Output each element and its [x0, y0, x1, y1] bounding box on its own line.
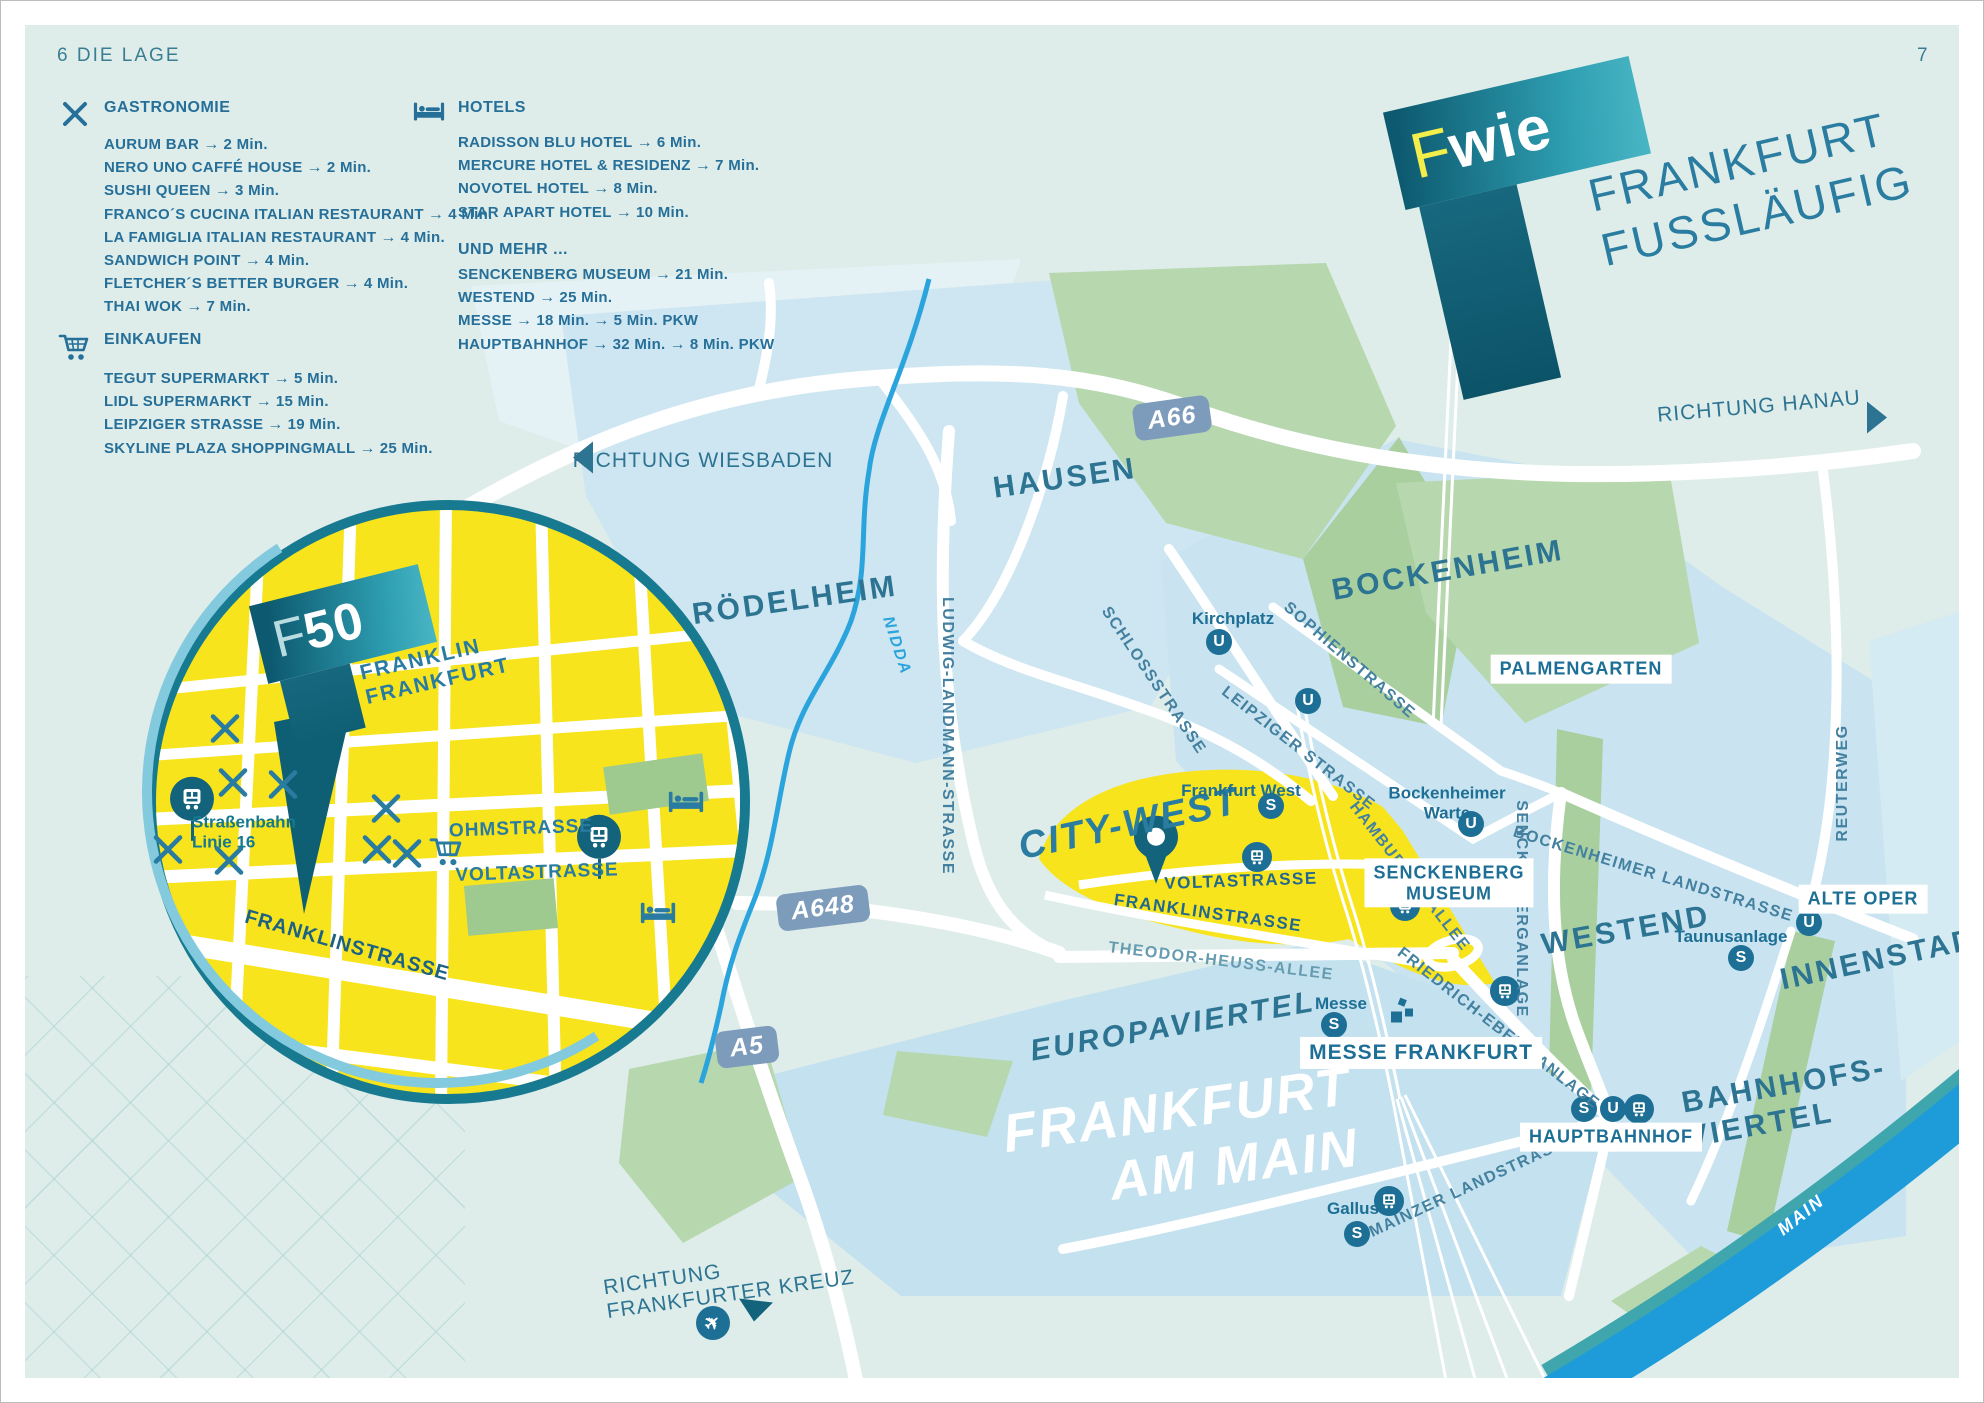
page-number-right: 7 [1917, 45, 1930, 67]
legend-item: NERO UNO CAFFÉ HOUSE→2 Min. [104, 156, 438, 179]
legend-item: LA FAMIGLIA ITALIAN RESTAURANT→4 Min. [104, 226, 438, 249]
inset-map-circle: F50 [146, 500, 750, 1104]
legend-title: GASTRONOMIE [104, 99, 230, 117]
legend-item: SANDWICH POINT→4 Min. [104, 249, 438, 272]
f50-logo-50: 50 [298, 590, 371, 663]
legend-item: NOVOTEL HOTEL→8 Min. [458, 177, 792, 200]
legend-title: UND MEHR ... [458, 241, 568, 259]
legend-item: AURUM BAR→2 Min. [104, 133, 438, 156]
legend-item: LEIPZIGER STRASSE→19 Min. [104, 413, 438, 436]
legend-einkaufen: EINKAUFEN TEGUT SUPERMARKT→5 Min.LIDL SU… [58, 331, 438, 460]
legend-item: MESSE→18 Min.→5 Min. PKW [458, 309, 792, 332]
legend-item: SUSHI QUEEN→3 Min. [104, 179, 438, 202]
legend-item: LIDL SUPERMARKT→15 Min. [104, 390, 438, 413]
legend-gastronomie: GASTRONOMIE AURUM BAR→2 Min.NERO UNO CAF… [58, 99, 438, 319]
legend-hotels: HOTELS RADISSON BLU HOTEL→6 Min.MERCURE … [412, 99, 792, 224]
shopping-cart-icon [58, 331, 92, 363]
highway-badge-a5: A5 [714, 1025, 780, 1069]
legend-item: FLETCHER´S BETTER BURGER→4 Min. [104, 272, 438, 295]
legend-item: THAI WOK→7 Min. [104, 295, 438, 318]
legend-item: SENCKENBERG MUSEUM→21 Min. [458, 263, 792, 286]
legend-title: HOTELS [458, 99, 526, 117]
legend-item: MERCURE HOTEL & RESIDENZ→7 Min. [458, 154, 792, 177]
f-wie-logo-wie: wie [1442, 91, 1558, 183]
inset-streets [156, 510, 740, 1094]
legend-item: WESTEND→25 Min. [458, 286, 792, 309]
legend-item: SKYLINE PLAZA SHOPPINGMALL→25 Min. [104, 437, 438, 460]
fork-knife-icon [58, 99, 92, 129]
legend-item: FRANCO´S CUCINA ITALIAN RESTAURANT→4 Min… [104, 203, 438, 226]
legend-item: RADISSON BLU HOTEL→6 Min. [458, 131, 792, 154]
legend-item: STAR APART HOTEL→10 Min. [458, 201, 792, 224]
page-number-left: 6 DIE LAGE [57, 45, 181, 67]
hotel-bed-icon [412, 99, 446, 127]
legend-title: EINKAUFEN [104, 331, 202, 349]
legend-item: HAUPTBAHNHOF→32 Min.→8 Min. PKW [458, 333, 792, 356]
legend-und-mehr: UND MEHR ... SENCKENBERG MUSEUM→21 Min.W… [412, 241, 792, 356]
legend-item: TEGUT SUPERMARKT→5 Min. [104, 367, 438, 390]
brochure-page: F50 Fwie FRANKFURT FUSSLÄUFIG GASTRONOMI… [0, 0, 1984, 1403]
